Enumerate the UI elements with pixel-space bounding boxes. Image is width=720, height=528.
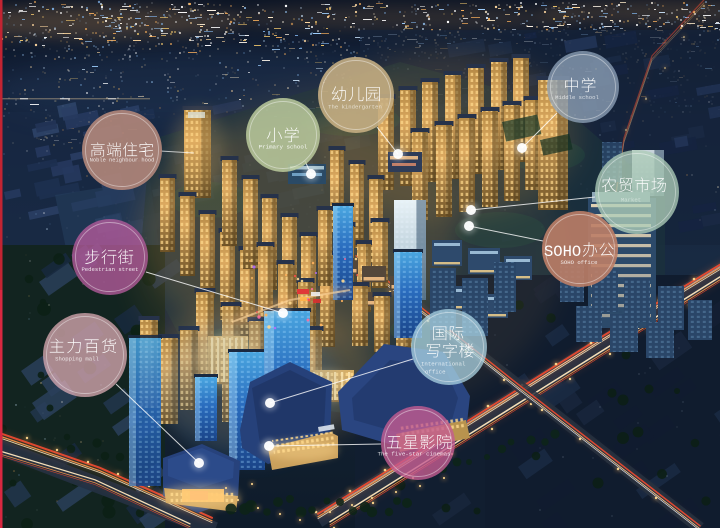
svg-text:Pedestrian street: Pedestrian street <box>81 266 138 273</box>
svg-text:Noble neighbour hood: Noble neighbour hood <box>90 158 155 164</box>
svg-text:The kindergarten: The kindergarten <box>328 104 382 111</box>
svg-text:office: office <box>425 369 446 376</box>
svg-text:International: International <box>421 361 466 368</box>
svg-text:Primary school: Primary school <box>259 143 308 150</box>
svg-text:SOHO office: SOHO office <box>561 259 598 266</box>
svg-text:Middle school: Middle school <box>555 94 599 101</box>
svg-text:Market: Market <box>621 197 641 204</box>
svg-text:The five-star cinemas: The five-star cinemas <box>377 451 450 458</box>
svg-text:Shopping mall: Shopping mall <box>55 356 99 363</box>
